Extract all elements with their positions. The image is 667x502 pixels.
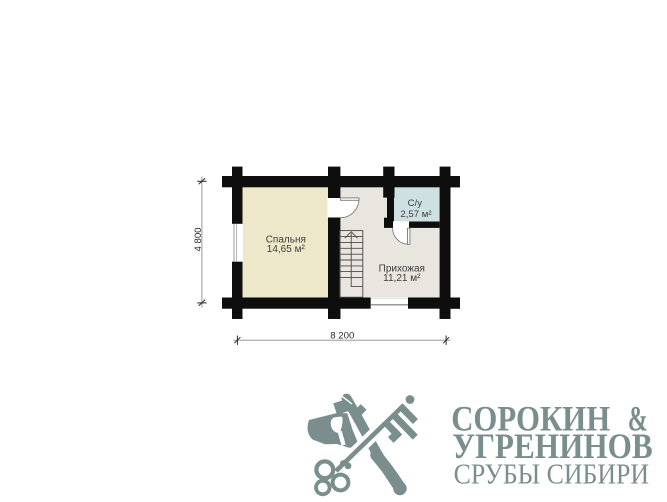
svg-text:8 200: 8 200 — [330, 330, 354, 341]
svg-text:14,65 м²: 14,65 м² — [267, 244, 306, 255]
svg-text:С/у: С/у — [408, 198, 423, 209]
svg-text:2,57 м²: 2,57 м² — [400, 209, 432, 220]
svg-text:11,21 м²: 11,21 м² — [383, 273, 421, 284]
svg-text:4 800: 4 800 — [193, 227, 204, 251]
svg-text:СРУБЫ СИБИРИ: СРУБЫ СИБИРИ — [454, 459, 649, 490]
